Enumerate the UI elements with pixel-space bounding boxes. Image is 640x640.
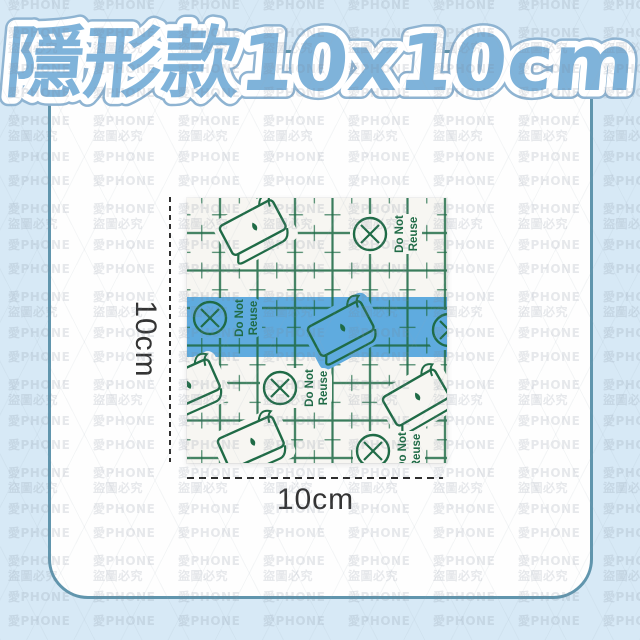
- watermark-text: 愛PHONE: [603, 148, 640, 165]
- watermark-text: 愛PHONE: [433, 612, 495, 629]
- watermark-text: 愛PHONE: [603, 200, 640, 217]
- watermark-text: 愛PHONE: [603, 288, 640, 305]
- product-banner-image: 隱形款10x10cm 隱形款10x10cm 隱形款10x10cm Do Not …: [0, 0, 640, 640]
- watermark-text: 愛PHONE: [603, 436, 640, 453]
- watermark-text: 愛PHONE: [178, 612, 240, 629]
- watermark-text: 愛PHONE: [603, 324, 640, 341]
- watermark-text: 愛PHONE: [603, 412, 640, 429]
- watermark-text: 愛PHONE: [603, 612, 640, 629]
- product-title: 隱形款10x10cm: [2, 18, 639, 109]
- watermark-text: 愛PHONE: [603, 524, 640, 541]
- watermark-text: 愛PHONE: [348, 612, 410, 629]
- watermark-text: 愛PHONE: [93, 612, 155, 629]
- watermark-text: 盜圖必究: [603, 215, 640, 232]
- watermark-text: 盜圖必究: [603, 391, 640, 408]
- watermark-text: 愛PHONE: [603, 500, 640, 517]
- watermark-text: 愛PHONE: [8, 612, 70, 629]
- height-dimension-line: [169, 197, 171, 462]
- film-dressing-photo: Do Not Reuse: [187, 198, 447, 463]
- watermark-text: 愛PHONE: [603, 172, 640, 189]
- width-dimension-label: 10cm: [187, 483, 444, 517]
- watermark-text: 盜圖必究: [603, 479, 640, 496]
- watermark-text: 愛PHONE: [603, 552, 640, 569]
- title-banner: 隱形款10x10cm 隱形款10x10cm 隱形款10x10cm: [0, 0, 640, 132]
- watermark-text: 愛PHONE: [603, 260, 640, 277]
- height-dimension-label: 10cm: [130, 294, 162, 384]
- watermark-text: 愛PHONE: [603, 348, 640, 365]
- watermark-text: 愛PHONE: [603, 464, 640, 481]
- watermark-text: 盜圖必究: [603, 303, 640, 320]
- watermark-text: 愛PHONE: [263, 612, 325, 629]
- width-dimension-line: [187, 477, 443, 479]
- watermark-text: 愛PHONE: [603, 376, 640, 393]
- watermark-text: 愛PHONE: [518, 612, 580, 629]
- watermark-text: 愛PHONE: [603, 236, 640, 253]
- watermark-text: 盜圖必究: [603, 567, 640, 584]
- watermark-text: 愛PHONE: [8, 588, 70, 605]
- watermark-text: 愛PHONE: [603, 588, 640, 605]
